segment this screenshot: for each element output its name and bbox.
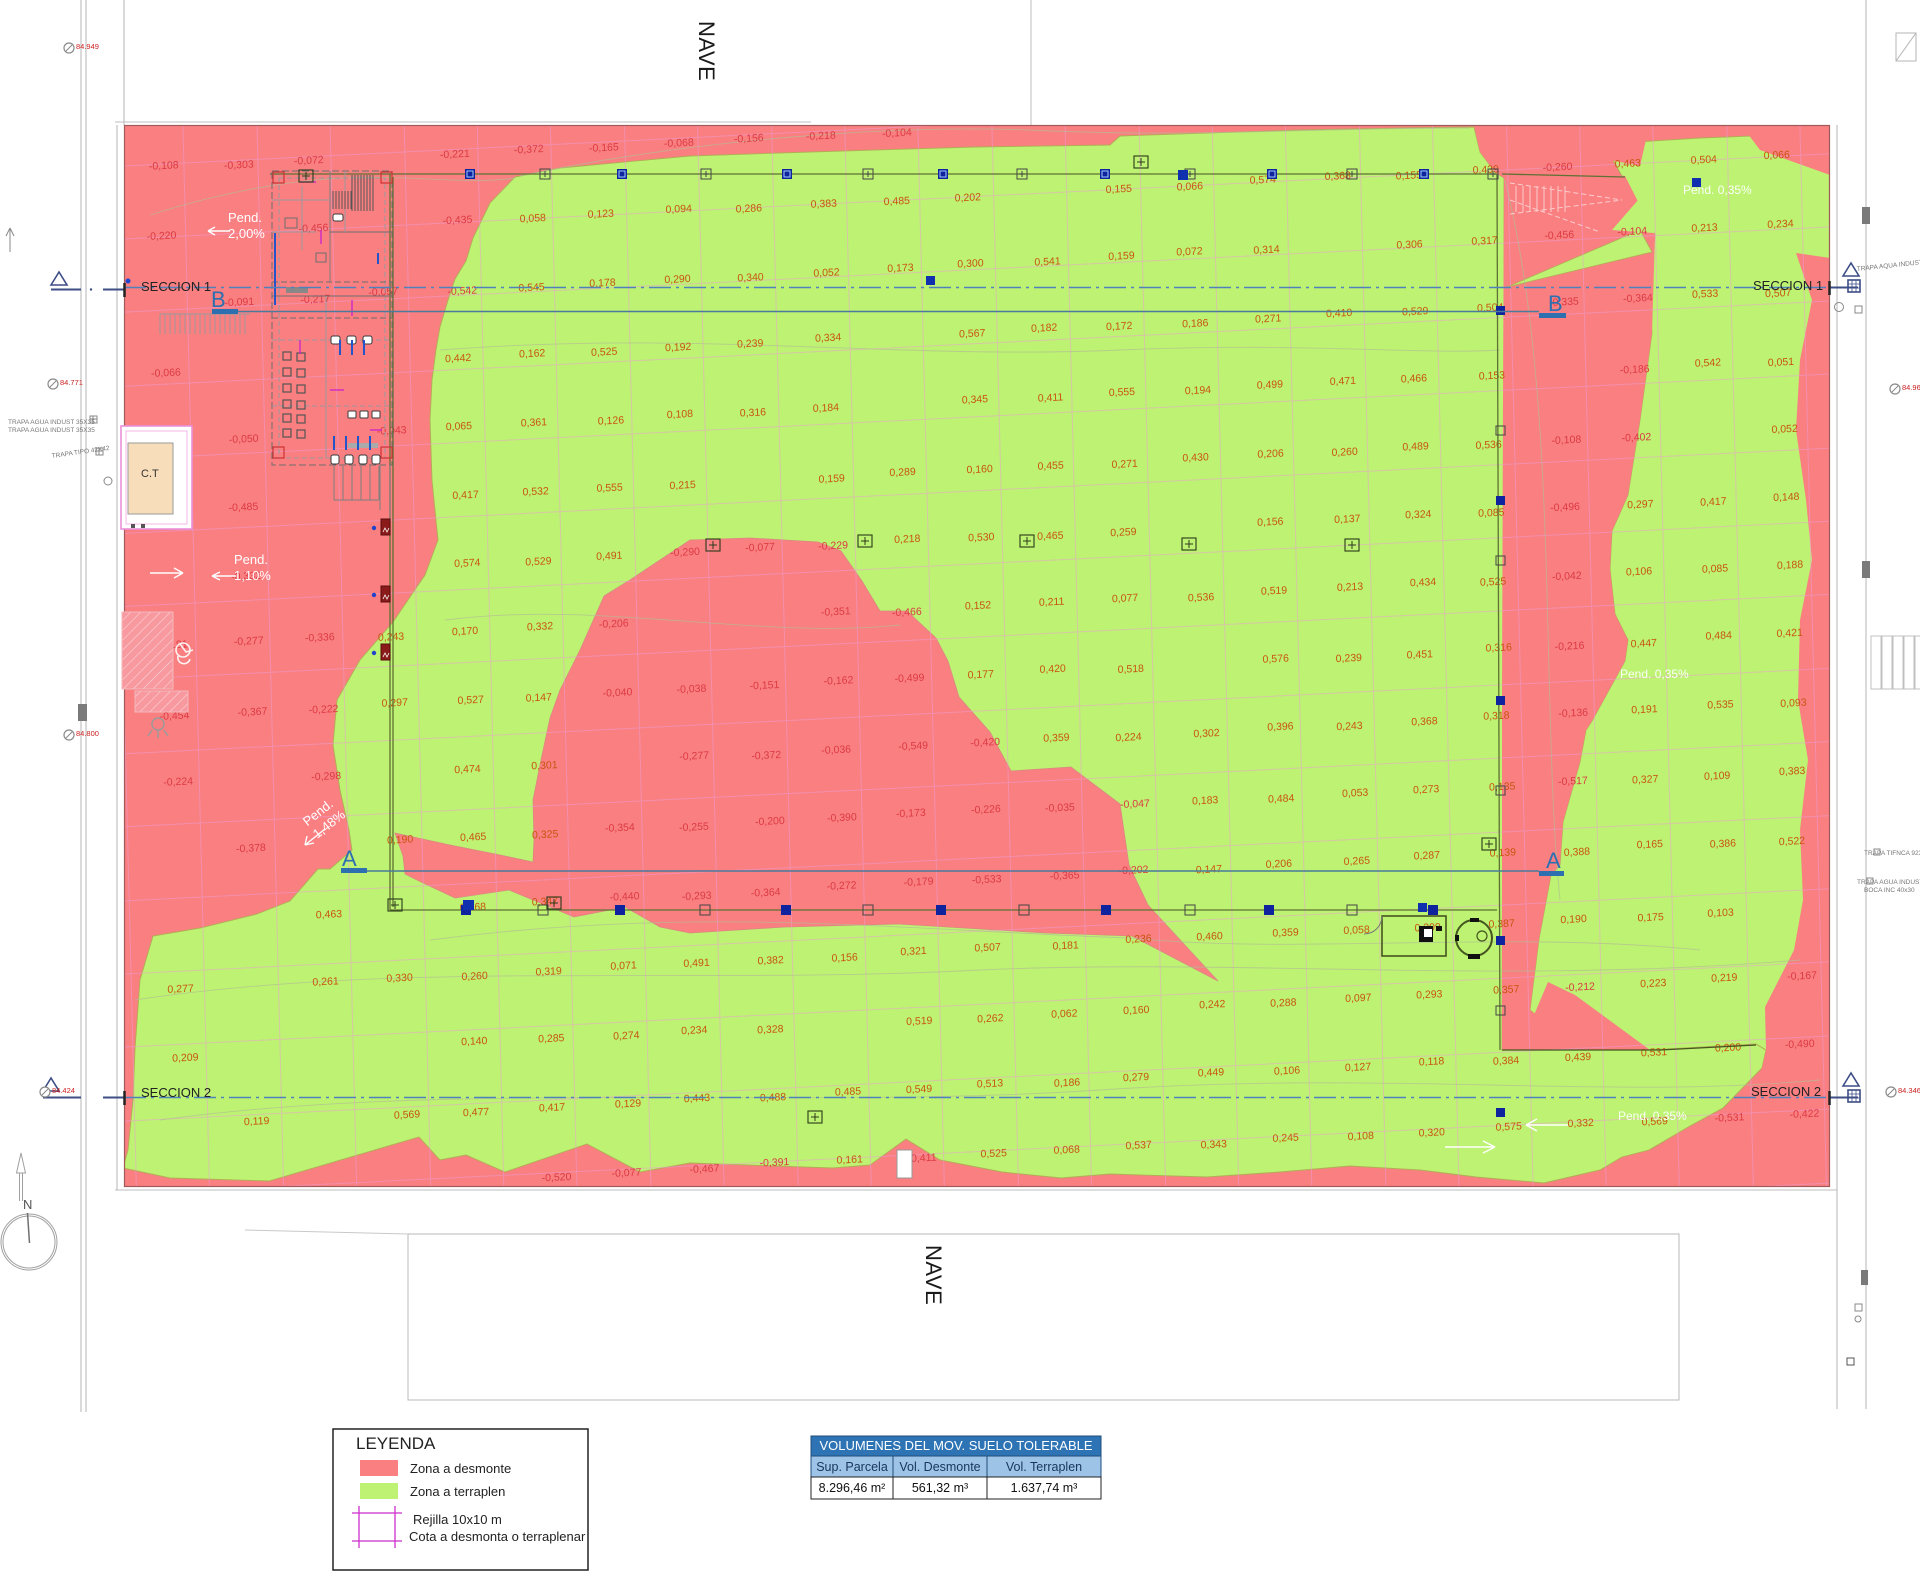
svg-text:0,430: 0,430 — [1182, 451, 1209, 464]
svg-text:0,242: 0,242 — [1199, 998, 1226, 1011]
svg-text:0,484: 0,484 — [1705, 629, 1732, 642]
svg-text:0,260: 0,260 — [461, 970, 488, 983]
svg-text:0,289: 0,289 — [889, 466, 916, 479]
svg-text:0,239: 0,239 — [1336, 652, 1363, 665]
svg-text:0,097: 0,097 — [1345, 992, 1372, 1005]
svg-text:0,053: 0,053 — [1342, 787, 1369, 800]
svg-text:-0,156: -0,156 — [734, 132, 764, 145]
svg-text:-0,072: -0,072 — [294, 154, 324, 167]
svg-text:0,194: 0,194 — [1185, 384, 1212, 397]
svg-text:0,234: 0,234 — [1767, 218, 1794, 231]
svg-text:-0,440: -0,440 — [610, 890, 640, 903]
svg-text:-0,216: -0,216 — [1555, 640, 1585, 653]
svg-text:0,051: 0,051 — [1768, 356, 1795, 369]
svg-text:-0,068: -0,068 — [664, 137, 694, 150]
svg-text:-0,364: -0,364 — [751, 886, 781, 899]
svg-text:0,188: 0,188 — [1777, 559, 1804, 572]
svg-text:0,368: 0,368 — [1411, 715, 1438, 728]
svg-text:0,182: 0,182 — [1031, 322, 1058, 335]
svg-text:-0,351: -0,351 — [821, 605, 851, 618]
svg-text:-0,151: -0,151 — [749, 679, 779, 692]
svg-text:Zona a desmonte: Zona a desmonte — [410, 1461, 511, 1476]
svg-text:0,277: 0,277 — [167, 983, 194, 996]
svg-text:0,420: 0,420 — [1039, 663, 1066, 676]
svg-text:SECCION 2: SECCION 2 — [1751, 1084, 1821, 1099]
svg-text:0,072: 0,072 — [1176, 245, 1203, 258]
svg-text:0,271: 0,271 — [1255, 312, 1282, 325]
svg-text:0,279: 0,279 — [1123, 1071, 1150, 1084]
svg-text:0,518: 0,518 — [1118, 663, 1145, 676]
svg-text:0,574: 0,574 — [454, 557, 481, 570]
svg-text:0,317: 0,317 — [1471, 234, 1498, 247]
svg-text:0,260: 0,260 — [1331, 446, 1358, 459]
svg-text:-0,496: -0,496 — [1550, 501, 1580, 514]
svg-text:0,170: 0,170 — [452, 625, 479, 638]
svg-text:0,324: 0,324 — [1405, 508, 1432, 521]
svg-text:0,384: 0,384 — [1493, 1054, 1520, 1067]
svg-text:0,319: 0,319 — [535, 965, 562, 978]
svg-text:8.296,46 m²: 8.296,46 m² — [819, 1481, 886, 1495]
svg-text:0,186: 0,186 — [1182, 317, 1209, 330]
svg-text:0,265: 0,265 — [1344, 855, 1371, 868]
svg-text:0,175: 0,175 — [1637, 911, 1664, 924]
svg-text:-0,077: -0,077 — [745, 541, 775, 554]
svg-text:0,106: 0,106 — [1274, 1064, 1301, 1077]
svg-text:0,449: 0,449 — [1198, 1066, 1225, 1079]
svg-text:0,542: 0,542 — [1695, 356, 1722, 369]
svg-text:0,140: 0,140 — [461, 1035, 488, 1048]
svg-text:0,186: 0,186 — [1054, 1076, 1081, 1089]
svg-text:-0,104: -0,104 — [1617, 225, 1647, 238]
svg-text:0,443: 0,443 — [684, 1092, 711, 1105]
svg-text:-0,456: -0,456 — [299, 222, 329, 235]
svg-text:0,507: 0,507 — [974, 941, 1001, 954]
svg-text:0,533: 0,533 — [1692, 288, 1719, 301]
svg-text:0,153: 0,153 — [1479, 369, 1506, 382]
svg-text:Vol. Desmonte: Vol. Desmonte — [899, 1460, 980, 1474]
svg-text:0,334: 0,334 — [815, 331, 842, 344]
svg-text:0,052: 0,052 — [1771, 423, 1798, 436]
svg-text:0,058: 0,058 — [1343, 924, 1370, 937]
svg-text:0,202: 0,202 — [955, 191, 982, 204]
svg-text:0,465: 0,465 — [1037, 530, 1064, 543]
svg-text:0,135: 0,135 — [1489, 780, 1516, 793]
svg-text:0,287: 0,287 — [1414, 849, 1441, 862]
svg-text:0,513: 0,513 — [977, 1077, 1004, 1090]
svg-text:0,489: 0,489 — [1402, 440, 1429, 453]
svg-text:0,183: 0,183 — [1192, 794, 1219, 807]
svg-text:0,529: 0,529 — [525, 555, 552, 568]
svg-text:0,417: 0,417 — [452, 489, 479, 502]
svg-text:-0,224: -0,224 — [163, 775, 193, 788]
svg-text:0,161: 0,161 — [836, 1153, 863, 1166]
svg-text:0,357: 0,357 — [1493, 983, 1520, 996]
svg-text:-0,390: -0,390 — [827, 811, 857, 824]
svg-text:84.424: 84.424 — [52, 1086, 75, 1095]
svg-text:0,165: 0,165 — [1637, 838, 1664, 851]
svg-text:0,245: 0,245 — [1272, 1132, 1299, 1145]
svg-text:0,567: 0,567 — [959, 327, 986, 340]
svg-text:-0,517: -0,517 — [1558, 775, 1588, 788]
svg-text:-0,372: -0,372 — [514, 143, 544, 156]
svg-text:-0,108: -0,108 — [149, 159, 179, 172]
svg-text:0,535: 0,535 — [1707, 698, 1734, 711]
svg-text:0,215: 0,215 — [669, 479, 696, 492]
svg-text:TRAPA AGUA INDUST 35X35: TRAPA AGUA INDUST 35X35 — [1857, 879, 1920, 886]
svg-text:0,190: 0,190 — [1560, 913, 1587, 926]
svg-text:0,108: 0,108 — [1347, 1130, 1374, 1143]
svg-text:-0,422: -0,422 — [1789, 1108, 1819, 1121]
svg-text:0,532: 0,532 — [522, 485, 549, 498]
svg-text:0,411: 0,411 — [1038, 391, 1064, 404]
svg-text:-0,290: -0,290 — [670, 546, 700, 559]
svg-text:0,159: 0,159 — [1108, 250, 1135, 263]
svg-text:0,052: 0,052 — [813, 266, 840, 279]
svg-text:Pend. 0,35%: Pend. 0,35% — [1618, 1109, 1687, 1123]
svg-text:0,109: 0,109 — [1704, 770, 1731, 783]
svg-text:0,527: 0,527 — [457, 694, 484, 707]
svg-text:0,455: 0,455 — [1037, 459, 1064, 472]
svg-text:0,261: 0,261 — [312, 975, 339, 988]
svg-text:84.969: 84.969 — [1902, 383, 1920, 392]
svg-text:0,106: 0,106 — [1626, 565, 1653, 578]
svg-text:0,447: 0,447 — [1631, 637, 1658, 650]
svg-text:0,460: 0,460 — [1196, 930, 1223, 943]
svg-text:-0,378: -0,378 — [236, 842, 266, 855]
svg-text:0,314: 0,314 — [1253, 243, 1280, 256]
svg-text:0,466: 0,466 — [1401, 372, 1428, 385]
svg-text:0,537: 0,537 — [1125, 1139, 1152, 1152]
svg-text:-0,367: -0,367 — [238, 706, 268, 719]
svg-text:0,471: 0,471 — [1330, 375, 1357, 388]
svg-text:N: N — [23, 1197, 32, 1212]
svg-text:84.771: 84.771 — [60, 378, 83, 387]
svg-text:0,325: 0,325 — [532, 828, 559, 841]
svg-text:0,316: 0,316 — [740, 406, 767, 419]
svg-text:0,519: 0,519 — [906, 1015, 933, 1028]
svg-text:0,343: 0,343 — [1201, 1138, 1228, 1151]
svg-text:-0,420: -0,420 — [970, 736, 1000, 749]
svg-text:0,525: 0,525 — [980, 1147, 1007, 1160]
svg-text:0,200: 0,200 — [1715, 1041, 1742, 1054]
svg-text:TRAPA AGUA INDUST 35X35: TRAPA AGUA INDUST 35X35 — [8, 419, 95, 426]
svg-text:0,290: 0,290 — [664, 273, 691, 286]
svg-text:0,410: 0,410 — [1326, 307, 1353, 320]
svg-text:0,522: 0,522 — [1779, 835, 1806, 848]
svg-text:-0,272: -0,272 — [827, 879, 857, 892]
svg-text:84.949: 84.949 — [76, 42, 99, 51]
svg-text:0,262: 0,262 — [977, 1012, 1004, 1025]
svg-text:0,259: 0,259 — [1110, 526, 1137, 539]
svg-text:0,439: 0,439 — [1565, 1051, 1592, 1064]
svg-text:0,465: 0,465 — [460, 831, 487, 844]
svg-text:0,066: 0,066 — [1764, 149, 1791, 162]
svg-text:-0,467: -0,467 — [689, 1163, 719, 1176]
svg-text:-0,104: -0,104 — [882, 127, 912, 140]
svg-text:0,300: 0,300 — [957, 257, 984, 270]
svg-text:0,332: 0,332 — [527, 620, 554, 633]
svg-text:Pend.: Pend. — [228, 210, 262, 225]
svg-text:-0,035: -0,035 — [1045, 801, 1075, 814]
svg-text:0,192: 0,192 — [665, 341, 692, 354]
svg-text:0,172: 0,172 — [1106, 320, 1133, 333]
svg-text:TRAPA TIFNCA 92X92: TRAPA TIFNCA 92X92 — [1864, 850, 1920, 857]
svg-text:0,162: 0,162 — [519, 347, 546, 360]
svg-text:0,396: 0,396 — [1267, 720, 1294, 733]
svg-text:0,474: 0,474 — [454, 763, 481, 776]
svg-text:0,155: 0,155 — [1106, 183, 1133, 196]
svg-text:-0,091: -0,091 — [224, 296, 254, 309]
svg-text:-0,136: -0,136 — [1558, 707, 1588, 720]
svg-text:0,173: 0,173 — [887, 262, 914, 275]
svg-text:NAVE: NAVE — [694, 21, 719, 81]
svg-text:0,484: 0,484 — [1268, 792, 1295, 805]
svg-text:0,575: 0,575 — [1495, 1120, 1522, 1133]
svg-text:0,555: 0,555 — [1109, 386, 1136, 399]
svg-text:0,213: 0,213 — [1691, 221, 1718, 234]
svg-text:B: B — [1548, 291, 1563, 316]
svg-text:1.637,74 m³: 1.637,74 m³ — [1011, 1481, 1078, 1495]
svg-text:-0,221: -0,221 — [440, 148, 470, 161]
svg-text:0,223: 0,223 — [1640, 977, 1667, 990]
svg-text:0,340: 0,340 — [737, 271, 764, 284]
svg-text:0,206: 0,206 — [1257, 447, 1284, 460]
svg-text:0,077: 0,077 — [1112, 592, 1139, 605]
svg-text:-0,549: -0,549 — [898, 740, 928, 753]
svg-text:561,32 m³: 561,32 m³ — [912, 1481, 968, 1495]
svg-text:0,123: 0,123 — [588, 208, 615, 221]
svg-text:0,147: 0,147 — [1196, 863, 1223, 876]
svg-text:84.346: 84.346 — [1898, 1086, 1920, 1095]
svg-text:0,320: 0,320 — [1418, 1126, 1445, 1139]
svg-text:-0,212: -0,212 — [1565, 981, 1595, 994]
svg-text:0,439: 0,439 — [1473, 163, 1500, 176]
svg-text:0,442: 0,442 — [445, 352, 472, 365]
svg-text:0,127: 0,127 — [1345, 1061, 1372, 1074]
svg-text:0,485: 0,485 — [884, 195, 911, 208]
svg-text:0,491: 0,491 — [683, 957, 710, 970]
svg-text:0,274: 0,274 — [613, 1029, 640, 1042]
svg-text:0,190: 0,190 — [387, 833, 414, 846]
svg-text:0,218: 0,218 — [894, 533, 921, 546]
svg-text:Cota a desmonta o terraplenar: Cota a desmonta o terraplenar — [409, 1529, 586, 1544]
svg-text:0,234: 0,234 — [681, 1024, 708, 1037]
svg-text:-0,531: -0,531 — [1714, 1111, 1744, 1124]
svg-text:-0,050: -0,050 — [229, 433, 259, 446]
svg-text:-0,038: -0,038 — [676, 683, 706, 696]
svg-text:-0,435: -0,435 — [442, 214, 472, 227]
svg-text:-0,042: -0,042 — [1552, 570, 1582, 583]
svg-text:0,160: 0,160 — [966, 463, 993, 476]
svg-text:-0,490: -0,490 — [1785, 1038, 1815, 1051]
svg-text:-0,165: -0,165 — [589, 141, 619, 154]
svg-text:0,085: 0,085 — [1478, 506, 1505, 519]
svg-text:0,152: 0,152 — [965, 599, 992, 612]
svg-text:-0,173: -0,173 — [896, 807, 926, 820]
svg-text:NAVE: NAVE — [921, 1245, 946, 1305]
svg-text:Sup. Parcela: Sup. Parcela — [816, 1460, 888, 1474]
svg-text:Pend. 0,35%: Pend. 0,35% — [1620, 667, 1689, 681]
svg-text:0,386: 0,386 — [1710, 837, 1737, 850]
svg-text:VOLUMENES DEL MOV. SUELO TOLER: VOLUMENES DEL MOV. SUELO TOLERABLE — [819, 1438, 1092, 1453]
svg-text:0,273: 0,273 — [1413, 783, 1440, 796]
svg-text:0,451: 0,451 — [1407, 648, 1434, 661]
svg-text:0,181: 0,181 — [1052, 939, 1079, 952]
svg-text:0,065: 0,065 — [446, 420, 473, 433]
svg-text:0,160: 0,160 — [1123, 1004, 1150, 1017]
svg-text:-0,206: -0,206 — [599, 617, 629, 630]
svg-text:Rejilla 10x10 m: Rejilla 10x10 m — [413, 1512, 502, 1527]
svg-text:0,576: 0,576 — [1262, 652, 1289, 665]
svg-text:0,062: 0,062 — [1051, 1007, 1078, 1020]
svg-text:C.T: C.T — [141, 468, 159, 480]
svg-text:0,156: 0,156 — [831, 951, 858, 964]
svg-text:SECCION 1: SECCION 1 — [141, 279, 211, 294]
svg-text:0,485: 0,485 — [835, 1085, 862, 1098]
svg-text:0,239: 0,239 — [737, 337, 764, 350]
svg-text:0,318: 0,318 — [1483, 709, 1510, 722]
svg-text:-0,277: -0,277 — [234, 635, 264, 648]
svg-text:Pend.: Pend. — [234, 552, 268, 567]
svg-text:0,306: 0,306 — [1396, 238, 1423, 251]
svg-text:0,463: 0,463 — [316, 908, 343, 921]
svg-text:0,536: 0,536 — [1188, 591, 1215, 604]
svg-text:0,421: 0,421 — [1776, 627, 1803, 640]
svg-text:-0,499: -0,499 — [894, 672, 924, 685]
svg-text:0,119: 0,119 — [244, 1115, 270, 1128]
svg-text:0,243: 0,243 — [378, 631, 405, 644]
svg-text:0,569: 0,569 — [394, 1108, 421, 1121]
svg-text:0,147: 0,147 — [526, 691, 553, 704]
svg-text:0,387: 0,387 — [1488, 917, 1515, 930]
svg-text:-0,167: -0,167 — [1787, 969, 1817, 982]
svg-text:0,211: 0,211 — [1039, 596, 1065, 609]
svg-text:B: B — [211, 287, 226, 312]
svg-text:0,525: 0,525 — [591, 346, 618, 359]
svg-text:-0,542: -0,542 — [447, 285, 477, 298]
svg-text:0,286: 0,286 — [736, 202, 763, 215]
svg-text:-0,520: -0,520 — [542, 1171, 572, 1184]
svg-text:Zona a terraplen: Zona a terraplen — [410, 1484, 505, 1499]
svg-text:-0,391: -0,391 — [759, 1156, 789, 1169]
svg-text:-0,226: -0,226 — [971, 803, 1001, 816]
svg-text:0,066: 0,066 — [1177, 180, 1204, 193]
svg-text:TRAPA AGUA INDUST 35X35: TRAPA AGUA INDUST 35X35 — [8, 427, 95, 434]
svg-text:-0,466: -0,466 — [892, 606, 922, 619]
svg-text:BOCA INC 40x30: BOCA INC 40x30 — [1864, 887, 1915, 894]
svg-text:0,071: 0,071 — [610, 959, 637, 972]
svg-text:0,219: 0,219 — [1711, 971, 1738, 984]
svg-text:0,155: 0,155 — [1396, 169, 1423, 182]
svg-text:0,499: 0,499 — [1257, 378, 1284, 391]
svg-text:0,139: 0,139 — [1490, 846, 1517, 859]
svg-text:0,383: 0,383 — [811, 197, 838, 210]
svg-text:1,10%: 1,10% — [234, 568, 271, 583]
svg-text:0,541: 0,541 — [1034, 255, 1061, 268]
svg-text:0,184: 0,184 — [813, 402, 840, 415]
svg-text:0,288: 0,288 — [1270, 996, 1297, 1009]
svg-text:-0,186: -0,186 — [1620, 363, 1650, 376]
svg-text:-0,066: -0,066 — [151, 366, 181, 379]
svg-text:0,243: 0,243 — [1336, 720, 1363, 733]
svg-text:0,224: 0,224 — [1115, 731, 1142, 744]
svg-text:0,359: 0,359 — [1043, 731, 1070, 744]
svg-text:-0,303: -0,303 — [224, 159, 254, 172]
svg-text:-0,456: -0,456 — [1544, 229, 1574, 242]
svg-text:-0,222: -0,222 — [309, 703, 339, 716]
svg-text:SECCION 2: SECCION 2 — [141, 1085, 211, 1100]
svg-text:0,330: 0,330 — [386, 972, 413, 985]
svg-text:0,359: 0,359 — [1272, 926, 1299, 939]
svg-text:0,159: 0,159 — [818, 472, 845, 485]
svg-text:0,301: 0,301 — [531, 759, 558, 772]
svg-text:0,345: 0,345 — [962, 393, 989, 406]
svg-text:0,058: 0,058 — [520, 212, 547, 225]
svg-text:0,126: 0,126 — [598, 414, 625, 427]
svg-text:-0,108: -0,108 — [1551, 434, 1581, 447]
svg-text:0,156: 0,156 — [1257, 516, 1284, 529]
svg-text:0,093: 0,093 — [1780, 697, 1807, 710]
svg-text:0,491: 0,491 — [596, 550, 623, 563]
svg-text:-0,036: -0,036 — [821, 743, 851, 756]
svg-text:0,531: 0,531 — [1641, 1046, 1668, 1059]
svg-text:0,383: 0,383 — [1779, 765, 1806, 778]
svg-text:0,148: 0,148 — [1773, 491, 1800, 504]
svg-text:0,191: 0,191 — [1631, 703, 1658, 716]
svg-text:-0,485: -0,485 — [228, 501, 258, 514]
svg-text:-0,277: -0,277 — [679, 750, 709, 763]
svg-text:0,321: 0,321 — [900, 945, 927, 958]
svg-text:-0,200: -0,200 — [755, 815, 785, 828]
svg-text:0,293: 0,293 — [1416, 988, 1443, 1001]
svg-text:-0,354: -0,354 — [605, 821, 635, 834]
svg-text:-0,040: -0,040 — [602, 686, 632, 699]
svg-text:-0,047: -0,047 — [1120, 798, 1150, 811]
svg-text:-0,179: -0,179 — [904, 875, 934, 888]
svg-text:84.800: 84.800 — [76, 729, 99, 738]
svg-text:-0,255: -0,255 — [679, 821, 709, 834]
svg-text:0,504: 0,504 — [1691, 153, 1718, 166]
svg-text:0,463: 0,463 — [1615, 157, 1642, 170]
svg-text:-0,336: -0,336 — [305, 631, 335, 644]
svg-text:0,236: 0,236 — [1125, 933, 1152, 946]
svg-text:-0,364: -0,364 — [1623, 292, 1653, 305]
svg-text:0,525: 0,525 — [1480, 575, 1507, 588]
svg-text:0,388: 0,388 — [1564, 846, 1591, 859]
svg-text:0,519: 0,519 — [1261, 584, 1288, 597]
svg-text:-0,229: -0,229 — [818, 539, 848, 552]
svg-text:-0,077: -0,077 — [611, 1166, 641, 1179]
svg-text:2,00%: 2,00% — [228, 226, 265, 241]
svg-text:-0,220: -0,220 — [147, 229, 177, 242]
svg-text:0,206: 0,206 — [1266, 858, 1293, 871]
svg-text:0,209: 0,209 — [172, 1051, 199, 1064]
svg-text:-0,402: -0,402 — [1621, 431, 1651, 444]
svg-text:-0,293: -0,293 — [682, 890, 712, 903]
svg-text:0,297: 0,297 — [1627, 498, 1654, 511]
svg-text:0,213: 0,213 — [1337, 581, 1364, 594]
svg-text:0,297: 0,297 — [381, 696, 408, 709]
svg-text:0,555: 0,555 — [596, 481, 623, 494]
svg-text:0,103: 0,103 — [1707, 907, 1734, 920]
svg-text:0,328: 0,328 — [757, 1023, 784, 1036]
svg-text:-0,533: -0,533 — [972, 873, 1002, 886]
svg-text:0,285: 0,285 — [538, 1032, 565, 1045]
svg-text:-0,260: -0,260 — [1543, 161, 1573, 174]
svg-text:0,382: 0,382 — [757, 954, 784, 967]
svg-text:0,332: 0,332 — [1567, 1117, 1594, 1130]
svg-text:0,068: 0,068 — [1053, 1143, 1080, 1156]
